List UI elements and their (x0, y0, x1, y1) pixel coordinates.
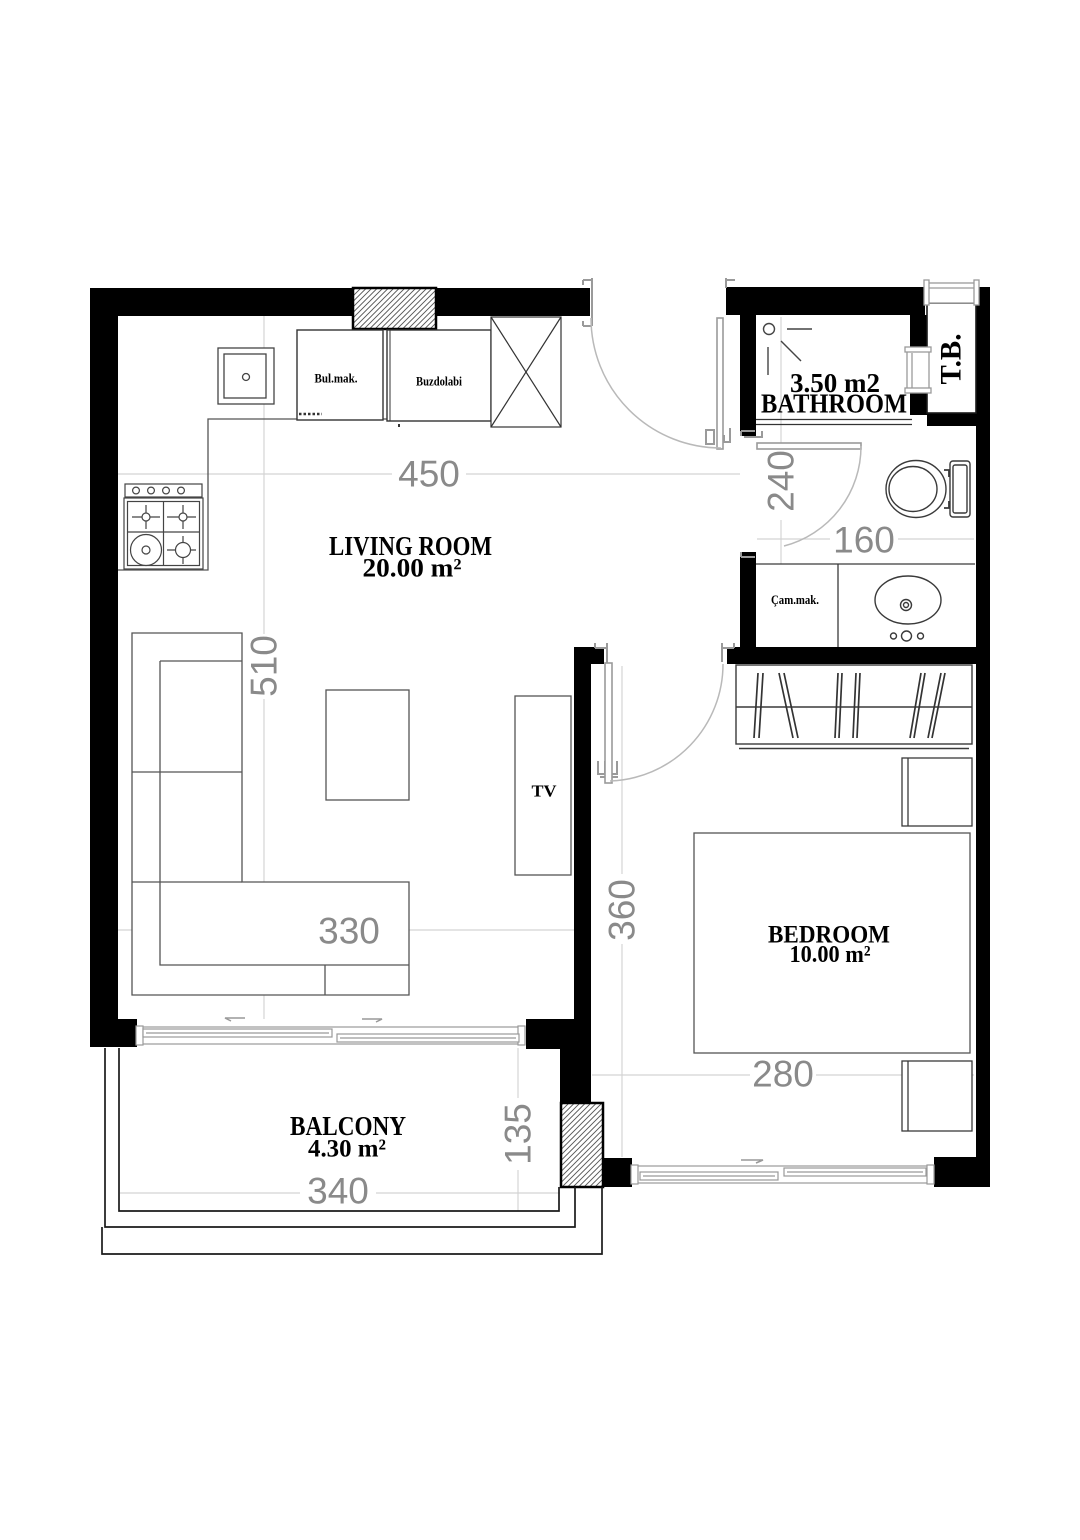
svg-text:Çam.mak.: Çam.mak. (771, 593, 819, 607)
svg-text:160: 160 (833, 520, 895, 561)
svg-text:20.00 m²: 20.00 m² (363, 554, 462, 583)
svg-text:280: 280 (752, 1054, 814, 1095)
svg-text:360: 360 (602, 879, 643, 941)
svg-text:BATHROOM: BATHROOM (761, 389, 907, 419)
svg-text:240: 240 (761, 450, 802, 512)
svg-text:10.00 m²: 10.00 m² (790, 942, 871, 968)
svg-text:340: 340 (307, 1171, 369, 1212)
svg-text:330: 330 (318, 911, 380, 952)
svg-text:135: 135 (498, 1103, 539, 1165)
svg-text:Buzdolabi: Buzdolabi (416, 374, 462, 389)
svg-text:510: 510 (244, 635, 285, 697)
svg-text:TV: TV (532, 782, 558, 801)
svg-text:450: 450 (398, 454, 460, 495)
svg-text:Bul.mak.: Bul.mak. (315, 371, 358, 386)
svg-text:4.30 m²: 4.30 m² (308, 1136, 386, 1163)
svg-text:T.B.: T.B. (935, 334, 968, 385)
